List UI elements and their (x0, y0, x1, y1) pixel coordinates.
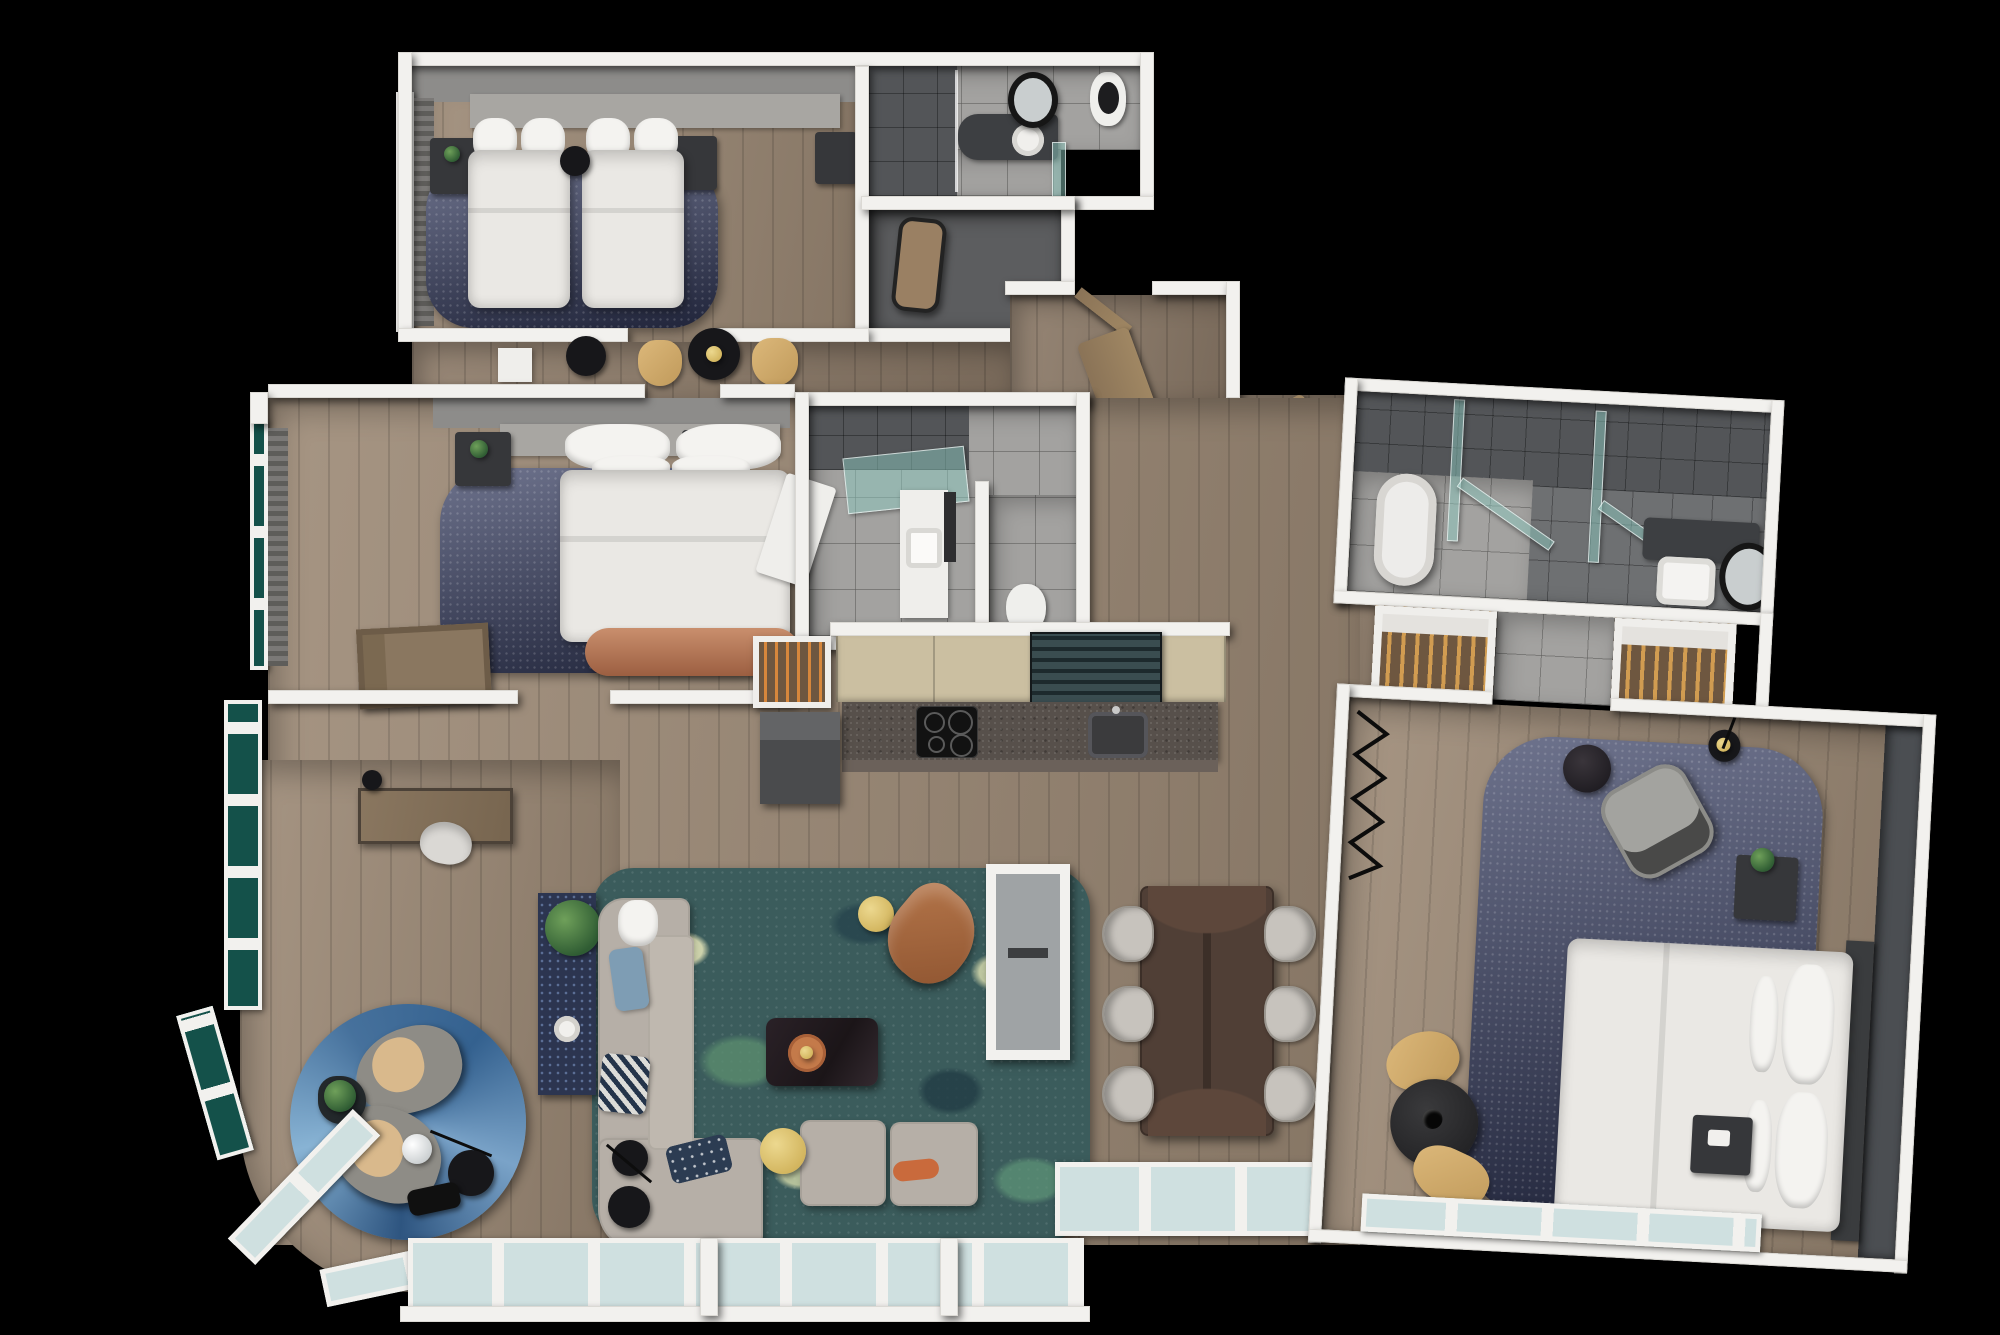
glass-screen (1052, 142, 1066, 200)
round-basin (1012, 124, 1044, 156)
desk-lamp (362, 770, 382, 790)
pillar (940, 1238, 958, 1316)
pillar (700, 1238, 718, 1316)
plant (324, 1080, 356, 1112)
mirror-panel (944, 492, 956, 562)
tan-chair (752, 338, 798, 386)
side-table (498, 348, 532, 382)
tissue-box (1707, 1129, 1730, 1146)
granite-counter (842, 702, 1218, 760)
white-cushion (618, 900, 658, 946)
open-wardrobe-with-hangers (753, 636, 831, 708)
plant (470, 440, 488, 458)
burner (928, 736, 945, 753)
wall (720, 384, 795, 398)
louvered-cabinets (1030, 632, 1162, 706)
burner (924, 712, 945, 733)
kitchen-sink (1088, 712, 1148, 758)
fireplace-slit (1008, 948, 1048, 958)
tan-chair (638, 340, 682, 386)
counter-edge (842, 760, 1218, 772)
plant (444, 146, 460, 162)
queen-bed (560, 470, 790, 642)
black-side-table (608, 1186, 650, 1228)
plant (545, 900, 601, 956)
round-table (566, 336, 606, 376)
wall (1755, 612, 1774, 719)
fruit-bowl (800, 1046, 813, 1059)
tall-appliance-unit (760, 712, 840, 804)
candle (706, 346, 722, 362)
floor-lamp (612, 1140, 648, 1176)
window (250, 420, 268, 670)
double-sided-fireplace (986, 864, 1070, 1060)
twin-bed (582, 150, 684, 308)
wall (398, 52, 412, 342)
wall (795, 392, 1090, 406)
toilet-lid (1098, 82, 1119, 114)
globe-lamp (402, 1134, 432, 1164)
wall (268, 384, 645, 398)
window (224, 700, 262, 1010)
wall (1140, 52, 1154, 210)
window-sill (400, 1306, 1090, 1322)
floor-plan-render (0, 0, 2000, 1335)
sofa-seat-cushions (648, 935, 694, 1150)
master-suite (1288, 285, 1999, 1318)
wall (250, 392, 268, 424)
white-vase (554, 1016, 580, 1042)
wall (1005, 281, 1075, 295)
wall (1076, 392, 1090, 650)
closet-corridor-floor (1493, 612, 1615, 706)
wall (268, 690, 518, 704)
dining-table (1140, 886, 1274, 1136)
round-side-table (560, 146, 590, 176)
chaise-module (800, 1120, 886, 1206)
freestanding-bathtub (1372, 472, 1438, 587)
wall (1226, 281, 1240, 398)
dining-chair (1102, 906, 1154, 962)
living-window-wall (408, 1238, 1084, 1314)
leaning-mirror (890, 216, 948, 315)
dining-chair (1102, 1066, 1154, 1122)
twin-bed (468, 150, 570, 308)
wall (398, 52, 1154, 66)
burner (948, 710, 973, 735)
houndstooth-cushion (597, 1053, 651, 1116)
gold-side-table (760, 1128, 806, 1174)
basin (1656, 556, 1716, 607)
wall (861, 196, 1075, 210)
round-mirror (1008, 72, 1058, 128)
dining-chair (1102, 986, 1154, 1042)
faucet (1112, 706, 1120, 714)
walk-in-shower (869, 66, 957, 196)
burner (950, 734, 973, 757)
basin (906, 528, 942, 568)
luggage-bench (815, 132, 857, 184)
curtains (268, 428, 288, 666)
wall (795, 392, 809, 650)
